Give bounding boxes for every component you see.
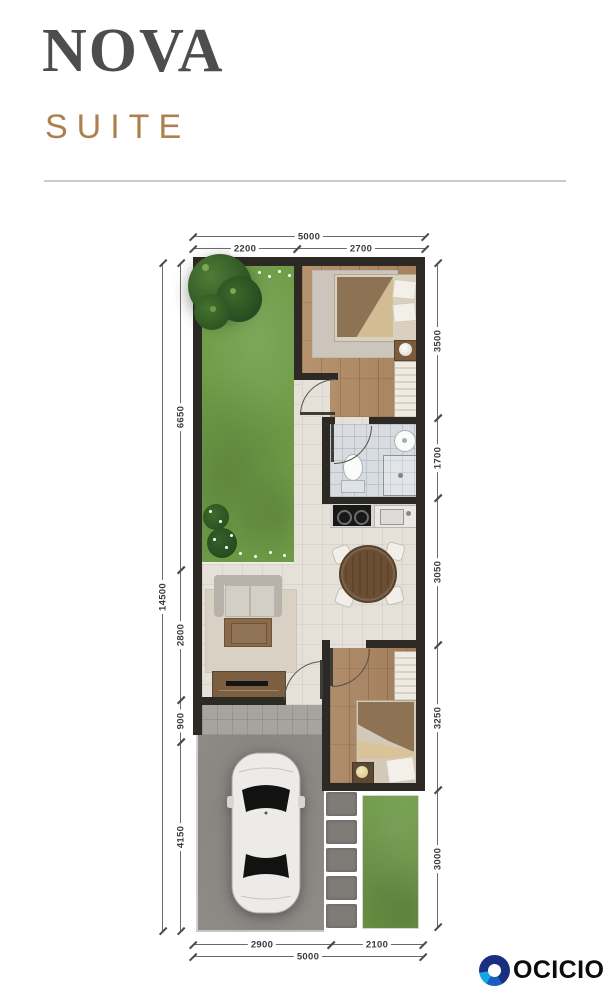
dim-label: 5000 bbox=[295, 231, 323, 242]
dim-label: 1700 bbox=[432, 444, 443, 472]
basin-drain bbox=[402, 438, 407, 443]
dim-right-segment-2: 1700 bbox=[437, 418, 438, 498]
toilet-tank bbox=[341, 480, 365, 493]
table-grain bbox=[345, 551, 391, 597]
car bbox=[227, 750, 305, 916]
tree-highlight bbox=[230, 288, 236, 294]
flower bbox=[219, 520, 222, 523]
dim-tick bbox=[158, 927, 166, 935]
dim-tick bbox=[189, 232, 197, 240]
dim-left-segment-3: 900 bbox=[180, 700, 181, 742]
wall-bedroom2-bottom bbox=[322, 783, 425, 791]
stepping-stone bbox=[326, 904, 357, 928]
sofa-cushion bbox=[250, 585, 275, 617]
console-shelf-line bbox=[219, 690, 279, 691]
dim-bottom-segment-1: 2900 bbox=[193, 944, 331, 945]
floor-plan-canvas: NOVA SUITE bbox=[0, 0, 611, 1000]
tv bbox=[226, 681, 268, 686]
cooktop bbox=[333, 505, 371, 526]
wall-living-bottom bbox=[193, 697, 286, 705]
garden-back bbox=[362, 795, 419, 929]
flower bbox=[278, 270, 281, 273]
dim-tick bbox=[176, 927, 184, 935]
bedroom2-lamp bbox=[356, 766, 368, 778]
shower-drain bbox=[398, 473, 403, 478]
entrance-door-leaf bbox=[320, 660, 323, 699]
sink-faucet bbox=[406, 511, 411, 516]
stepping-stone bbox=[326, 820, 357, 844]
bed-pillow bbox=[385, 756, 416, 784]
flower bbox=[269, 551, 272, 554]
sofa-arm bbox=[214, 575, 224, 617]
dim-left-segment-1: 6650 bbox=[180, 263, 181, 570]
kitchen-sink bbox=[374, 505, 418, 528]
dim-label: 3500 bbox=[432, 326, 443, 354]
dim-right-segment-5: 3000 bbox=[437, 790, 438, 927]
dim-right-segment-4: 3250 bbox=[437, 645, 438, 790]
stepping-stone bbox=[326, 876, 357, 900]
dim-label: 2900 bbox=[248, 939, 276, 950]
flower bbox=[254, 555, 257, 558]
burner bbox=[354, 510, 369, 525]
bed-pillow bbox=[392, 279, 417, 300]
dim-label: 900 bbox=[175, 710, 186, 733]
flower bbox=[288, 274, 291, 277]
dim-label: 14500 bbox=[157, 580, 168, 614]
dim-label: 3050 bbox=[432, 557, 443, 585]
ocicio-logo-icon bbox=[479, 955, 510, 986]
dim-label: 5000 bbox=[294, 951, 322, 962]
stepping-stone bbox=[326, 792, 357, 816]
flower bbox=[213, 538, 216, 541]
bedroom1-lamp bbox=[399, 343, 412, 356]
flower bbox=[209, 510, 212, 513]
flower bbox=[239, 552, 242, 555]
dim-right-segment-1: 3500 bbox=[437, 263, 438, 418]
bedroom2-door-leaf bbox=[330, 648, 333, 686]
dim-tick bbox=[158, 259, 166, 267]
dim-left-segment-4: 4150 bbox=[180, 742, 181, 931]
dim-left-segment-2: 2800 bbox=[180, 570, 181, 700]
tree-highlight bbox=[210, 306, 216, 312]
dim-tick bbox=[189, 940, 197, 948]
burner bbox=[337, 510, 352, 525]
bedroom1-door-leaf bbox=[300, 412, 335, 415]
shower-area bbox=[383, 455, 417, 496]
dining-table bbox=[339, 545, 397, 603]
dim-top-segment-1: 2200 bbox=[193, 248, 297, 249]
bedroom1-bed bbox=[334, 274, 418, 342]
bedroom1-wardrobe bbox=[394, 361, 418, 419]
dim-bottom-overall: 5000 bbox=[193, 956, 423, 957]
dim-label: 2100 bbox=[363, 939, 391, 950]
floor-plan: 5000 2200 2700 14500 6650 2800 900 bbox=[0, 0, 611, 1000]
tree-canopy bbox=[194, 294, 230, 330]
wall-garden-bedroom1 bbox=[294, 257, 302, 380]
coffee-table-tray bbox=[231, 623, 267, 644]
dim-tick bbox=[433, 259, 441, 267]
wash-basin bbox=[394, 430, 416, 452]
tv-console bbox=[212, 671, 286, 699]
dim-tick bbox=[419, 940, 427, 948]
bush bbox=[203, 504, 229, 530]
dim-label: 2800 bbox=[175, 621, 186, 649]
flower bbox=[283, 554, 286, 557]
ocicio-logo-text: OCICIO bbox=[513, 956, 604, 985]
dim-right-segment-3: 3050 bbox=[437, 498, 438, 645]
bathroom-door-leaf bbox=[331, 424, 334, 462]
wall-bath-bottom bbox=[322, 497, 425, 504]
sofa-cushion bbox=[225, 585, 250, 617]
dim-tick bbox=[419, 952, 427, 960]
wall-bedroom2-top bbox=[366, 640, 416, 648]
dim-label: 3250 bbox=[432, 703, 443, 731]
bed-pillow bbox=[392, 302, 417, 323]
coffee-table bbox=[224, 618, 272, 647]
dim-top-overall: 5000 bbox=[193, 236, 425, 237]
dim-label: 6650 bbox=[175, 402, 186, 430]
flower bbox=[225, 546, 228, 549]
dim-label: 4150 bbox=[175, 822, 186, 850]
flower-bed bbox=[203, 498, 239, 562]
dim-tick bbox=[189, 952, 197, 960]
dim-left-overall: 14500 bbox=[162, 263, 163, 931]
sink-basin bbox=[380, 509, 404, 525]
dim-tick bbox=[421, 244, 429, 252]
sofa bbox=[214, 575, 282, 617]
stepping-stone bbox=[326, 848, 357, 872]
wall-bath-top-right bbox=[369, 417, 416, 424]
wall-right bbox=[416, 257, 425, 791]
dim-label: 2200 bbox=[231, 243, 259, 254]
bush bbox=[207, 528, 237, 558]
dim-tick bbox=[421, 232, 429, 240]
dim-top-segment-2: 2700 bbox=[297, 248, 425, 249]
dim-tick bbox=[433, 923, 441, 931]
flower bbox=[230, 534, 233, 537]
dim-label: 3000 bbox=[432, 844, 443, 872]
flower-row-bottom bbox=[236, 548, 292, 560]
dim-tick bbox=[176, 259, 184, 267]
dim-label: 2700 bbox=[347, 243, 375, 254]
dim-bottom-segment-2: 2100 bbox=[331, 944, 423, 945]
stepping-stones bbox=[326, 792, 357, 930]
tree-highlight bbox=[202, 264, 209, 271]
tree bbox=[188, 250, 272, 338]
